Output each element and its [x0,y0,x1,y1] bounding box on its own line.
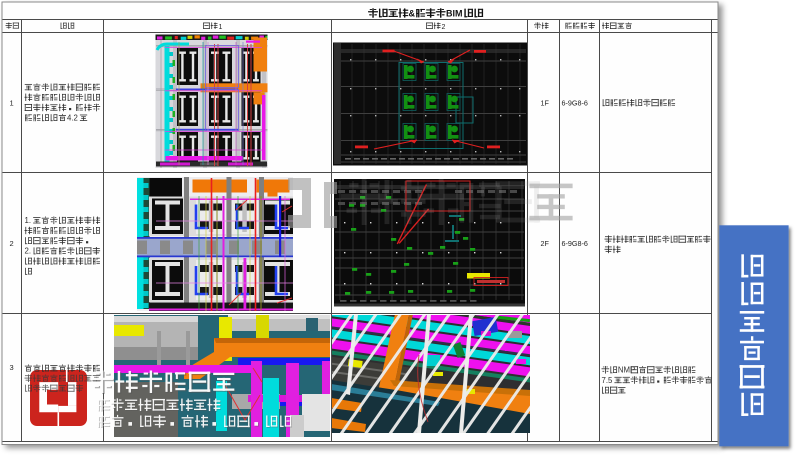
svg-text:1.: 1. [25,216,32,225]
svg-text:6-9G8-6: 6-9G8-6 [562,239,588,248]
svg-text:&: & [409,9,416,19]
svg-text:1: 1 [10,99,14,108]
svg-text:1: 1 [219,24,223,31]
svg-text:1F: 1F [541,98,550,107]
svg-text:6-9G8-6: 6-9G8-6 [562,98,588,107]
svg-text:2.: 2. [25,247,32,256]
svg-text:BIM: BIM [446,9,463,19]
svg-text:3: 3 [10,363,14,372]
svg-text:2: 2 [442,24,446,31]
svg-text:2: 2 [10,239,14,248]
svg-text:7.5: 7.5 [602,376,614,385]
svg-text:4.2: 4.2 [67,114,78,123]
svg-text:2F: 2F [541,239,550,248]
